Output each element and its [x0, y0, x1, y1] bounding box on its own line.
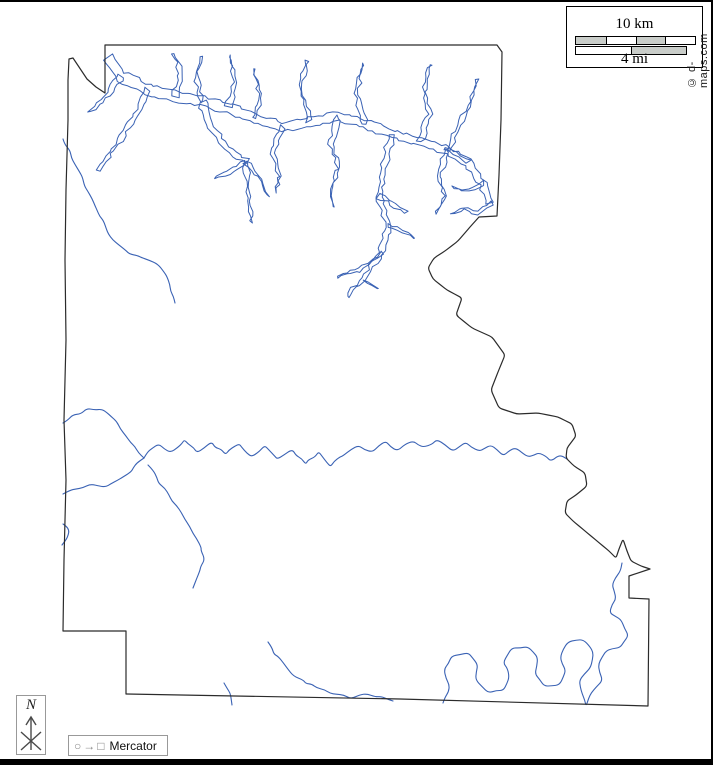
projection-label: Mercator	[110, 739, 157, 753]
circle-icon: ○	[74, 740, 81, 752]
frame-top-edge	[0, 0, 713, 2]
north-label: N	[17, 696, 45, 714]
scale-km-label: 10 km	[567, 16, 702, 33]
scale-bar-km	[575, 36, 696, 45]
scale-mi-label: 4 mi	[567, 51, 702, 68]
arrow-icon: →	[83, 740, 95, 752]
frame-bottom-edge	[0, 759, 713, 765]
north-arrow-icon	[18, 714, 44, 752]
scale-bar-box: 10 km 4 mi	[566, 6, 703, 68]
north-indicator-box: N	[16, 695, 46, 755]
projection-box: ○ → □ Mercator	[68, 735, 168, 756]
copyright-credit: © d-maps.com	[686, 8, 710, 88]
scale-segment	[606, 37, 636, 44]
scale-segment	[576, 37, 606, 44]
scale-segment	[636, 37, 666, 44]
map-page: 10 km 4 mi © d-maps.com N ○ → □ Merca	[0, 0, 713, 765]
square-icon: □	[97, 740, 104, 752]
map-svg	[0, 0, 713, 765]
